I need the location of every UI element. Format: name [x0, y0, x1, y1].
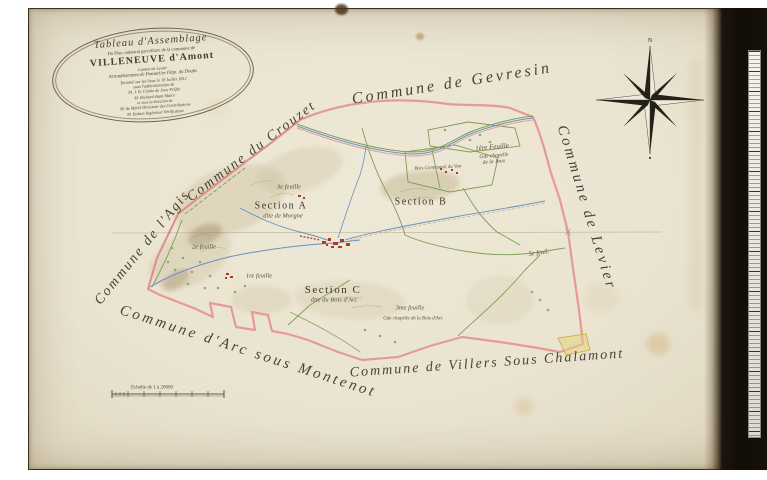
- section-b-label: Section B: [395, 197, 448, 208]
- sheet-label-3e: 3e feuille: [277, 184, 301, 191]
- scale-bar-label: Echelle de 1 à 20000: [131, 386, 173, 391]
- sheet-label-3me: 3me feuille: [396, 305, 425, 312]
- section-a-label: Section A: [255, 201, 308, 212]
- sheet-label-3me-note: Gde chapelle de la Bois d'Arc: [383, 317, 443, 322]
- section-c-label: Section C: [305, 284, 362, 296]
- cartouche-text: Tableau d'Assemblage Du Plan cadastral p…: [49, 21, 257, 129]
- sheet-label-1re: 1re feuille: [246, 273, 272, 280]
- section-c-subtitle: dite du Bois d'Arc: [311, 297, 357, 304]
- scanner-ruler: [748, 50, 761, 438]
- sheet-fold-shadow: [704, 8, 722, 470]
- title-cartouche: Tableau d'Assemblage Du Plan cadastral p…: [49, 21, 257, 129]
- scanner-background: [722, 8, 767, 470]
- compass-north-letter: N: [648, 38, 652, 44]
- scanned-cadastral-map: Tableau d'Assemblage Du Plan cadastral p…: [0, 0, 767, 480]
- sheet-label-2e: 2e feuille: [192, 244, 216, 251]
- section-a-subtitle: dite de Morgne: [263, 213, 302, 220]
